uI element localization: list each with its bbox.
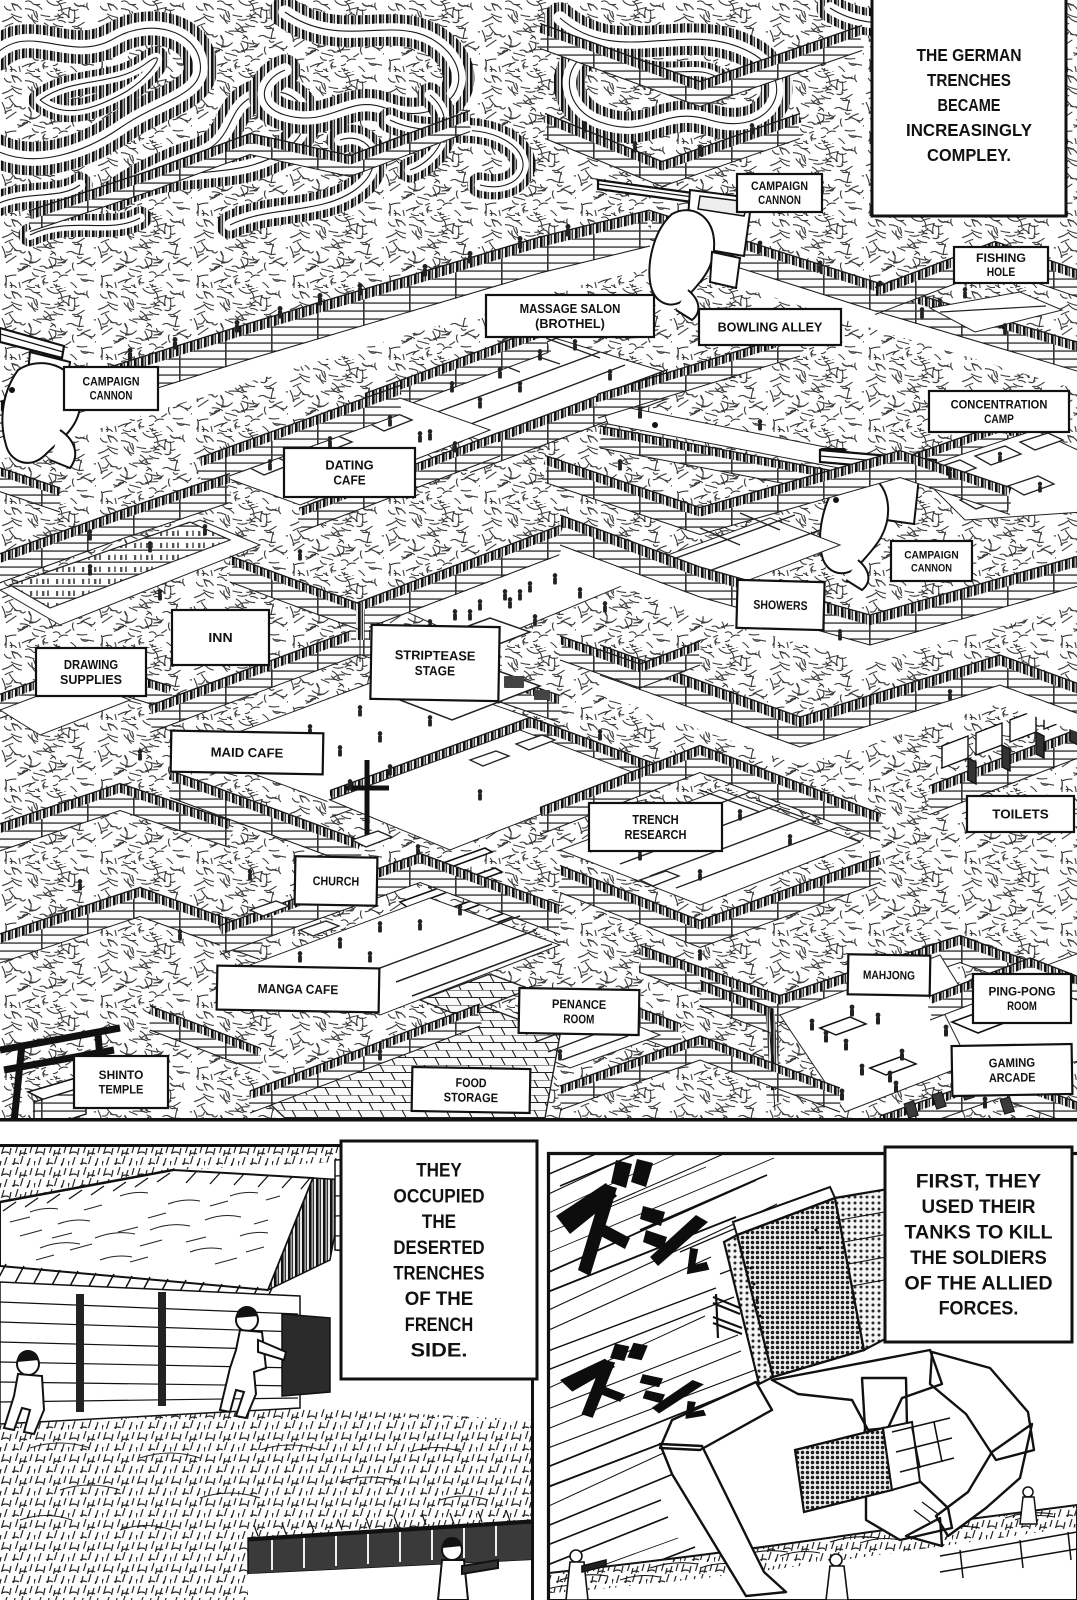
svg-text:CAMPAIGN: CAMPAIGN <box>82 377 139 389</box>
svg-text:CANNON: CANNON <box>911 562 952 574</box>
svg-text:CAFE: CAFE <box>333 473 366 488</box>
svg-text:DESERTED: DESERTED <box>393 1238 484 1259</box>
svg-text:TRENCHES: TRENCHES <box>927 70 1011 90</box>
svg-text:THE: THE <box>422 1212 456 1233</box>
svg-text:ROOM: ROOM <box>1007 999 1037 1013</box>
svg-text:COMPLEY.: COMPLEY. <box>927 145 1011 165</box>
svg-text:CAMPAIGN: CAMPAIGN <box>751 181 808 193</box>
svg-text:CANNON: CANNON <box>758 195 801 207</box>
svg-text:FOOD: FOOD <box>456 1076 487 1091</box>
svg-text:FRENCH: FRENCH <box>405 1315 473 1336</box>
svg-text:MANGA CAFE: MANGA CAFE <box>258 981 339 997</box>
svg-text:CHURCH: CHURCH <box>313 874 360 889</box>
svg-text:TRENCH: TRENCH <box>632 813 679 827</box>
svg-text:SHINTO: SHINTO <box>99 1068 144 1082</box>
svg-text:STAGE: STAGE <box>415 663 456 679</box>
svg-text:GAMING: GAMING <box>989 1056 1036 1071</box>
svg-text:TANKS TO KILL: TANKS TO KILL <box>904 1222 1053 1243</box>
svg-text:STRIPTEASE: STRIPTEASE <box>395 647 476 663</box>
svg-text:HOLE: HOLE <box>987 267 1016 279</box>
svg-text:TRENCHES: TRENCHES <box>393 1264 484 1285</box>
svg-text:CAMPAIGN: CAMPAIGN <box>904 549 959 561</box>
svg-text:INCREASINGLY: INCREASINGLY <box>906 120 1032 140</box>
svg-text:MAHJONG: MAHJONG <box>863 968 915 983</box>
svg-text:RESEARCH: RESEARCH <box>625 828 687 842</box>
svg-text:PENANCE: PENANCE <box>552 997 606 1012</box>
svg-text:TOILETS: TOILETS <box>992 807 1049 822</box>
svg-text:FIRST, THEY: FIRST, THEY <box>916 1172 1042 1193</box>
svg-text:DRAWING: DRAWING <box>64 658 118 672</box>
svg-text:CANNON: CANNON <box>90 390 133 402</box>
svg-text:FORCES.: FORCES. <box>939 1299 1019 1320</box>
svg-text:DATING: DATING <box>325 457 373 472</box>
svg-text:PING-PONG: PING-PONG <box>989 985 1056 999</box>
svg-text:INN: INN <box>208 630 232 645</box>
svg-text:THE GERMAN: THE GERMAN <box>917 45 1022 65</box>
svg-text:SUPPLIES: SUPPLIES <box>60 673 122 687</box>
svg-text:STORAGE: STORAGE <box>444 1090 498 1105</box>
svg-text:BOWLING ALLEY: BOWLING ALLEY <box>718 320 823 335</box>
svg-text:OF THE ALLIED: OF THE ALLIED <box>904 1273 1052 1294</box>
svg-text:OF THE: OF THE <box>405 1289 473 1310</box>
svg-text:BECAME: BECAME <box>938 95 1001 115</box>
svg-text:ROOM: ROOM <box>563 1012 594 1027</box>
svg-text:CAMP: CAMP <box>984 412 1014 426</box>
svg-text:SHOWERS: SHOWERS <box>753 598 808 613</box>
svg-text:OCCUPIED: OCCUPIED <box>393 1186 484 1207</box>
svg-text:MAID CAFE: MAID CAFE <box>211 744 284 760</box>
svg-text:CONCENTRATION: CONCENTRATION <box>951 398 1048 412</box>
svg-text:ARCADE: ARCADE <box>989 1070 1036 1085</box>
svg-text:SIDE.: SIDE. <box>411 1341 468 1362</box>
svg-text:THEY: THEY <box>416 1161 462 1182</box>
svg-text:FISHING: FISHING <box>976 253 1026 265</box>
svg-text:MASSAGE SALON: MASSAGE SALON <box>520 302 621 316</box>
svg-text:THE SOLDIERS: THE SOLDIERS <box>910 1248 1047 1269</box>
svg-text:USED THEIR: USED THEIR <box>922 1197 1036 1218</box>
svg-text:TEMPLE: TEMPLE <box>99 1082 144 1096</box>
svg-text:(BROTHEL): (BROTHEL) <box>535 317 605 331</box>
